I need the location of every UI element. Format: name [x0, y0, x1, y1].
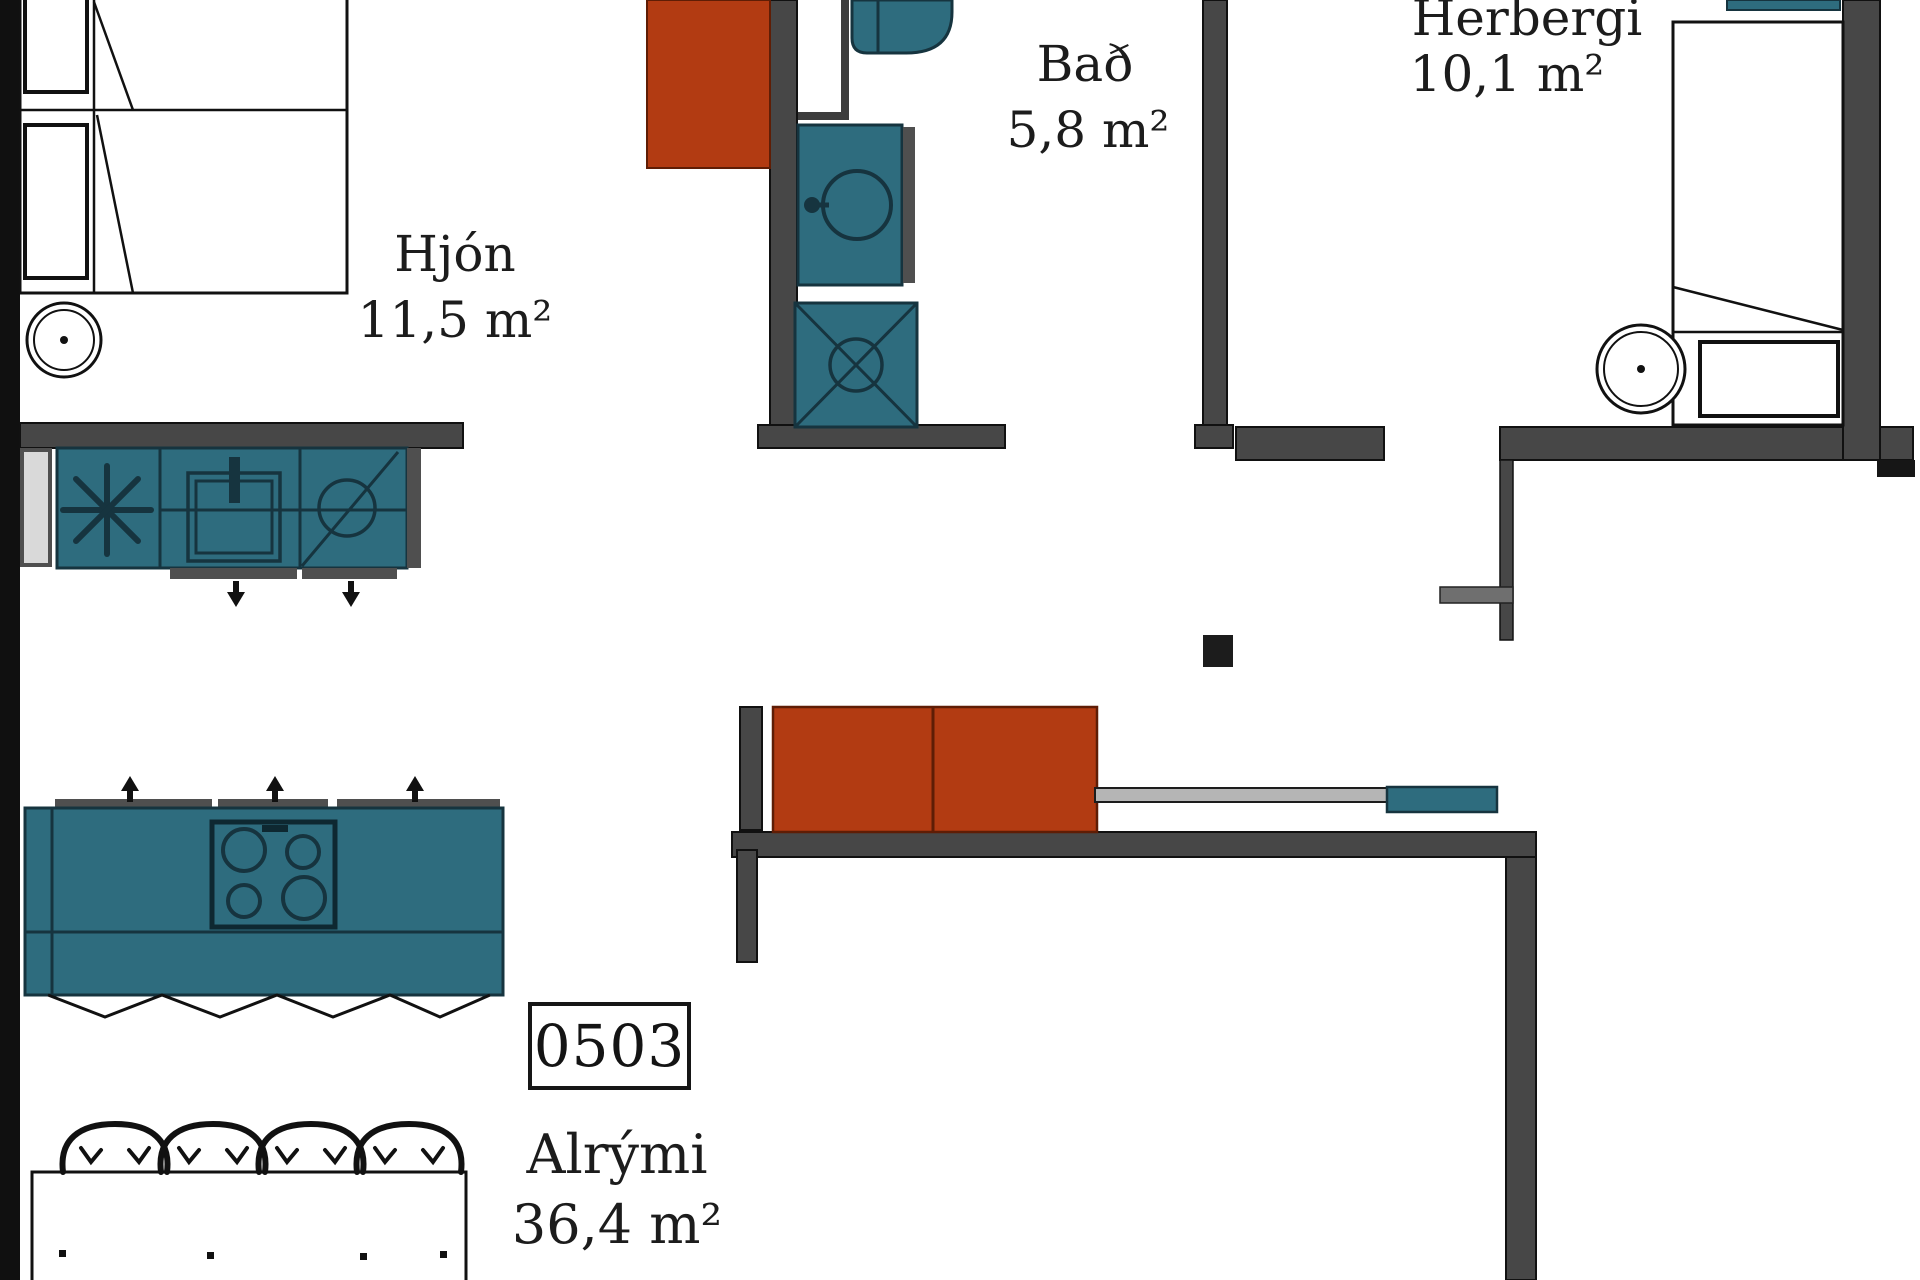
dining-chair: [160, 1124, 265, 1172]
left-outer-wall: [0, 0, 20, 1280]
corridor-return-wall: [1500, 460, 1513, 640]
freezer-star-icon: [63, 466, 151, 554]
right-wall-foot: [1877, 460, 1915, 477]
living-corridor-wall: [732, 832, 1536, 857]
toilet-bowl: [852, 0, 952, 53]
pillow-top: [25, 0, 87, 92]
hjon-bottom-wall: [20, 423, 463, 448]
floor-plan-drawing: [0, 0, 1920, 1280]
herbergi-shelf-strip: [1727, 0, 1840, 10]
room-area-herbergi: 10,1 m²: [1410, 46, 1605, 104]
pillow-bottom: [25, 125, 87, 278]
room-label-hjon: Hjón: [394, 226, 515, 284]
sofa-side-stub-wall: [740, 707, 762, 830]
side-table-dot: [60, 336, 68, 344]
hjon-side-table: [27, 303, 101, 377]
herbergi-bottom-wall-left: [1236, 427, 1384, 460]
bath-herbergi-divider-wall: [1203, 0, 1227, 425]
sofa: [773, 707, 1097, 832]
room-area-bad: 5,8 m²: [1007, 102, 1170, 160]
counter-edge-bar-1: [170, 568, 297, 579]
entry-stub-wall: [737, 850, 757, 962]
herbergi-side-table: [1597, 325, 1685, 413]
counter-end-stub: [407, 448, 421, 568]
unit-number-box: 0503: [528, 1002, 691, 1090]
living-right-wall: [1506, 857, 1536, 1280]
bath-left-wall: [770, 0, 797, 427]
dining-chair: [356, 1124, 461, 1172]
door-jamb-block: [1203, 635, 1233, 667]
table-dot: [207, 1252, 214, 1259]
arrow-up-icon: [266, 776, 284, 802]
radiator: [1387, 787, 1497, 812]
kitchen-faucet: [229, 457, 240, 503]
sink-tap: [804, 197, 820, 213]
room-area-alrymi: 36,4 m²: [512, 1194, 722, 1256]
double-bed: [20, 0, 347, 293]
table-dot: [59, 1250, 66, 1257]
single-bed: [1673, 22, 1843, 425]
arrow-down-icon: [227, 581, 245, 607]
tall-appliance: [22, 450, 50, 565]
dining-chair: [258, 1124, 363, 1172]
counter-edge-bar-2: [302, 568, 397, 579]
arrow-up-icon: [121, 776, 139, 802]
toilet: [852, 0, 952, 53]
arrow-down-icon: [342, 581, 360, 607]
room-label-alrymi: Alrými: [526, 1124, 707, 1186]
arrow-up-icon: [406, 776, 424, 802]
door-leaf: [1440, 587, 1513, 603]
bathroom-sink: [798, 125, 902, 285]
divider-wall-foot: [1195, 425, 1233, 448]
table-dot: [440, 1251, 447, 1258]
kitchen-counter: [57, 448, 407, 568]
stove-controls: [262, 825, 288, 832]
kitchen-island: [25, 808, 503, 995]
dining-table: [32, 1172, 466, 1280]
floor-plan: Hjón 11,5 m² Bað 5,8 m² Herbergi 10,1 m²…: [0, 0, 1920, 1280]
sink-side-wall: [903, 127, 915, 283]
side-table-dot: [1637, 365, 1645, 373]
right-outer-wall: [1843, 0, 1880, 460]
wardrobe: [647, 0, 770, 168]
room-label-bad: Bað: [1037, 36, 1134, 94]
table-dot: [360, 1253, 367, 1260]
bar-stool-zigzag: [48, 995, 490, 1017]
shaft-wall-line: [798, 0, 845, 116]
room-area-hjon: 11,5 m²: [358, 292, 553, 350]
console-shelf: [1095, 788, 1387, 802]
shower: [795, 303, 917, 427]
unit-number: 0503: [534, 1012, 686, 1080]
dining-chair: [62, 1124, 167, 1172]
sofa-body: [773, 707, 1097, 832]
room-label-herbergi: Herbergi: [1412, 0, 1643, 48]
single-bed-pillow: [1700, 342, 1838, 416]
